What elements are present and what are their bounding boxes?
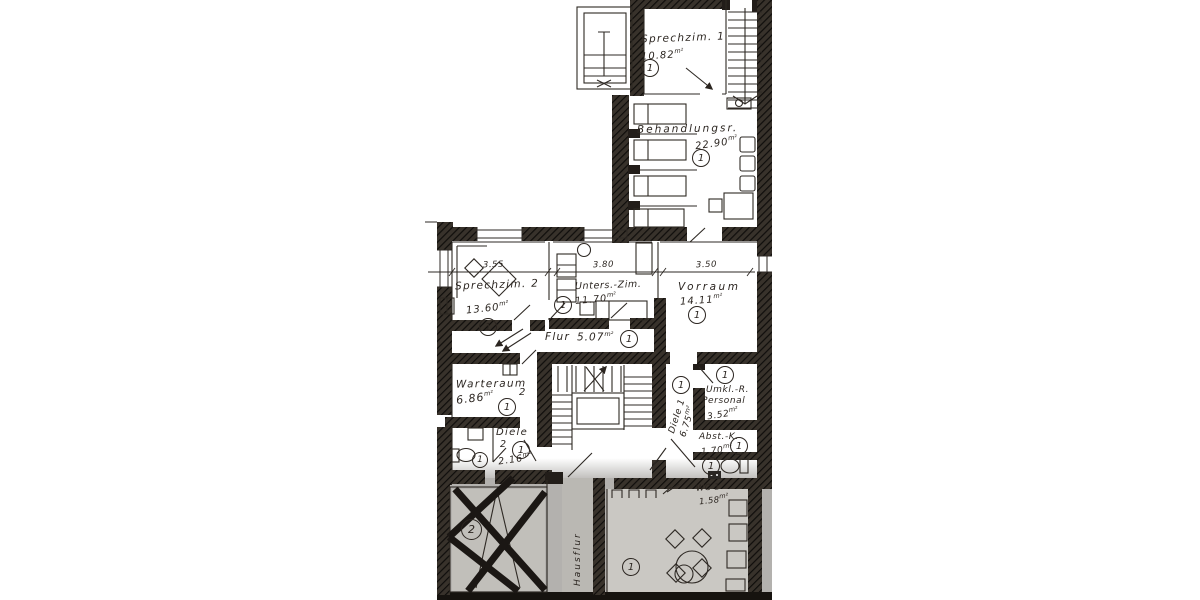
- unit-circle-behandlungsr: 1: [692, 149, 710, 167]
- unit-number: 1: [518, 445, 524, 456]
- unit-circle-wc-right: 1: [702, 457, 720, 475]
- unit-number: 1: [694, 310, 700, 321]
- room-label-wc1: WC 1: [696, 483, 721, 494]
- unit-number: 2: [468, 523, 475, 536]
- corridor-label-hausflur: Hausflur: [574, 532, 583, 586]
- unit-number: 1: [722, 370, 728, 381]
- unit-circle-warteraum: 1: [498, 398, 516, 416]
- sqm-unit: m²: [683, 405, 693, 416]
- room-label-vorraum: Vorraum: [678, 282, 740, 293]
- windows: [437, 227, 772, 287]
- unit-circle-diele1: 1: [672, 376, 690, 394]
- room-label-umkl: Umkl.-R.: [706, 386, 749, 395]
- unit-number: 1: [698, 153, 704, 164]
- sqm-unit: m²: [499, 299, 509, 308]
- room-label-diele2: Diele: [496, 428, 528, 439]
- unit-number: 1: [626, 334, 632, 345]
- room-label-umkl-2: Personal: [702, 397, 745, 406]
- unit-circle-wc-left: 1: [472, 452, 488, 468]
- dim-sprechzim2: 3.55: [483, 261, 504, 271]
- sqm-unit: m²: [728, 405, 738, 414]
- sqm-unit: m²: [674, 47, 683, 56]
- area-value: 1.70: [701, 445, 724, 457]
- unit-circle-sprechzim2: 1: [479, 318, 497, 336]
- room-label-behandlungsr: Behandlungsr.: [637, 123, 738, 136]
- room-number-diele2: 2: [500, 440, 507, 450]
- sqm-unit: m²: [713, 292, 722, 301]
- room-number-warteraum: 2: [519, 388, 527, 399]
- unit-number: 1: [647, 63, 653, 74]
- dim-vorraum: 3.50: [696, 261, 717, 271]
- room-label-flur: Flur: [545, 332, 570, 343]
- sqm-unit: m²: [727, 133, 737, 142]
- sqm-unit: m²: [719, 491, 729, 500]
- unit-circle-diele2: 1: [512, 441, 530, 459]
- balcony: [577, 7, 632, 89]
- unit-number: 1: [485, 322, 491, 333]
- upper-staircase: [728, 8, 762, 108]
- central-stairwell: [552, 365, 652, 450]
- dim-unters-zim: 3.80: [593, 261, 614, 271]
- unit-number: 1: [560, 300, 566, 311]
- unit-number: 1: [708, 461, 714, 472]
- sqm-unit: m²: [604, 330, 613, 338]
- unit-circle-umkl: 1: [716, 366, 734, 384]
- sqm-unit: m²: [484, 389, 494, 398]
- unit-circle-sprechzim1: 1: [641, 59, 659, 77]
- unit-number: 1: [628, 562, 634, 573]
- scanned-floorplan-page: Sprechzim. 1 10.82m² 1 Behandlungsr. 22.…: [0, 0, 1200, 600]
- unit-circle-bottom-room: 1: [622, 558, 640, 576]
- sqm-unit: m²: [607, 290, 617, 299]
- unit-circle-unters-zim: 1: [554, 296, 572, 314]
- furniture-warteraum: [503, 364, 517, 375]
- unit-circle-flur: 1: [620, 330, 638, 348]
- unit-number: 1: [477, 455, 483, 465]
- unit-circle-vorraum: 1: [688, 306, 706, 324]
- room-area-flur: 5.07m²: [577, 331, 613, 344]
- unit-number: 1: [736, 441, 742, 452]
- area-value: 5.07: [577, 332, 604, 344]
- unit-circle-abst: 1: [730, 437, 748, 455]
- unit-number: 1: [504, 402, 510, 413]
- area-value: 1.58: [699, 495, 720, 507]
- unit-circle-crossed-area: 2: [461, 519, 482, 540]
- unit-number: 1: [678, 380, 684, 391]
